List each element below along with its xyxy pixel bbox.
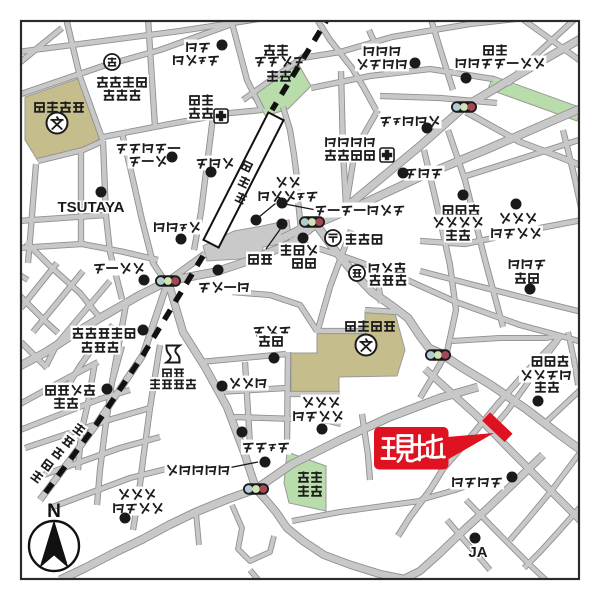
- svg-text:JA: JA: [468, 544, 487, 561]
- svg-text:N: N: [47, 501, 61, 522]
- svg-text:TSUTAYA: TSUTAYA: [58, 199, 125, 216]
